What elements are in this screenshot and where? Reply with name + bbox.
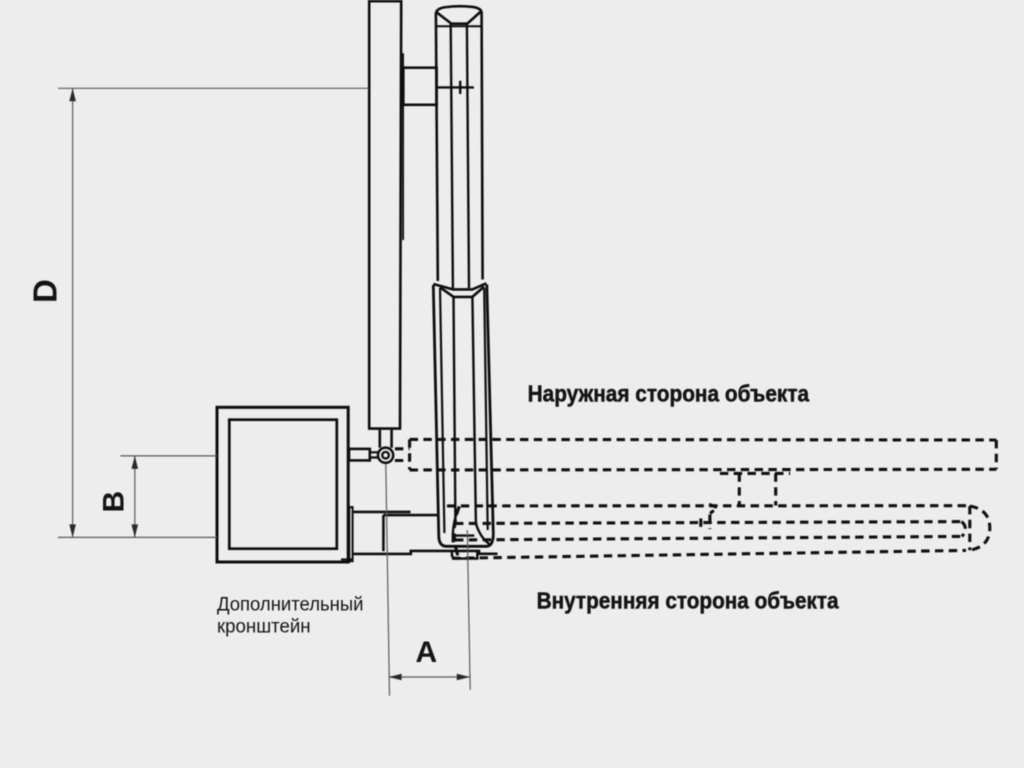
svg-text:Дополнительный: Дополнительный (217, 593, 364, 615)
svg-text:B: B (98, 491, 131, 513)
svg-text:D: D (27, 279, 64, 303)
svg-text:Наружная сторона объекта: Наружная сторона объекта (528, 380, 810, 406)
svg-text:кронштейн: кронштейн (217, 616, 311, 638)
svg-text:Внутренняя сторона объекта: Внутренняя сторона объекта (537, 588, 840, 614)
svg-text:A: A (416, 636, 438, 669)
